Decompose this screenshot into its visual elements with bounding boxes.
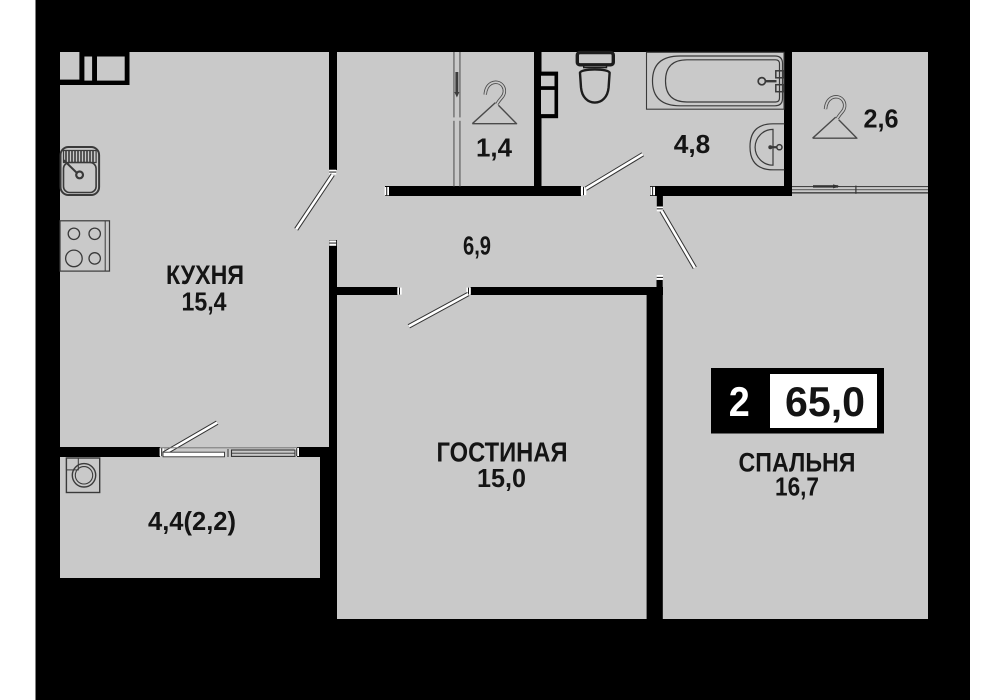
- svg-text:4,4(2,2): 4,4(2,2): [148, 506, 236, 536]
- svg-text:1,4: 1,4: [476, 133, 513, 163]
- svg-text:2: 2: [729, 378, 750, 425]
- svg-text:15,0: 15,0: [477, 463, 526, 493]
- svg-text:65,0: 65,0: [785, 378, 865, 425]
- svg-text:16,7: 16,7: [775, 472, 819, 502]
- svg-text:КУХНЯ: КУХНЯ: [166, 260, 244, 290]
- svg-text:4,8: 4,8: [674, 129, 711, 159]
- svg-text:6,9: 6,9: [463, 231, 491, 261]
- svg-text:2,6: 2,6: [864, 104, 899, 134]
- svg-text:15,4: 15,4: [182, 287, 227, 317]
